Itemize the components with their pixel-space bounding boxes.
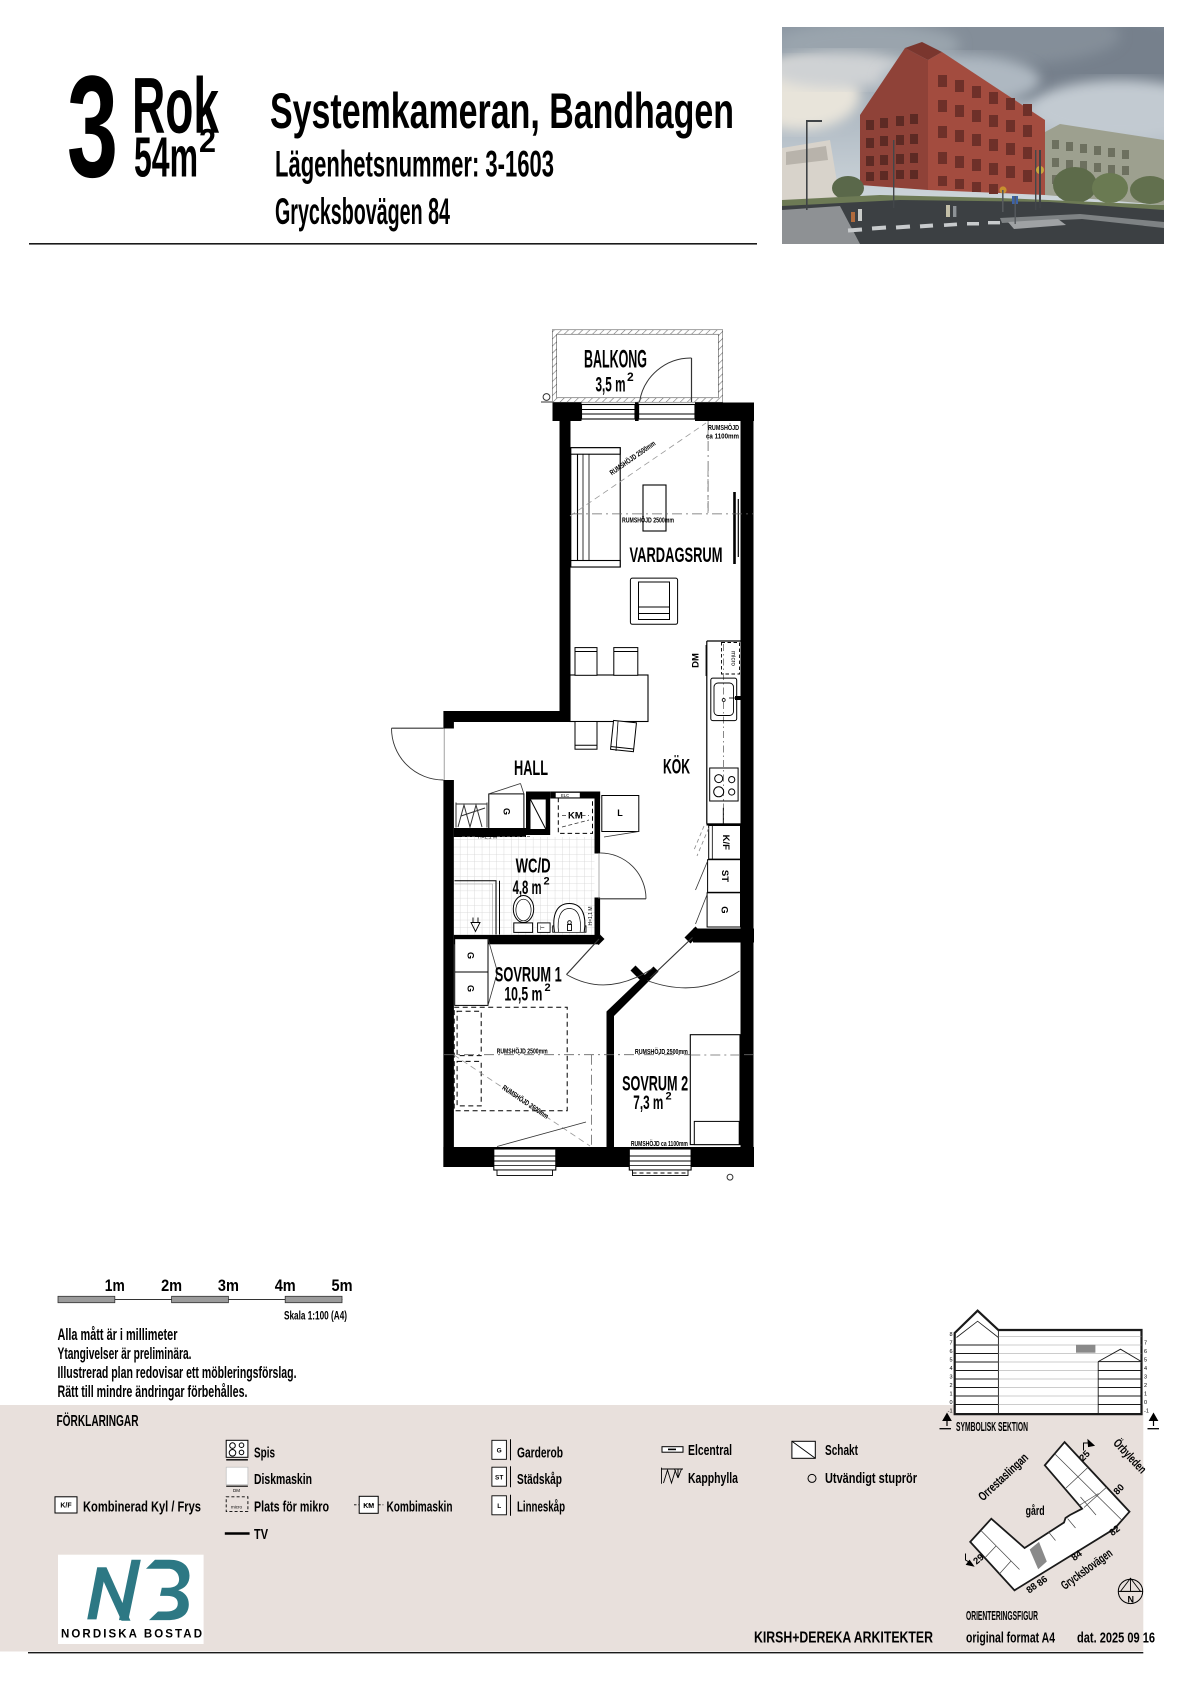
- svg-text:gård: gård: [1026, 1504, 1045, 1518]
- svg-text:K/F: K/F: [720, 835, 731, 851]
- svg-text:4: 4: [1144, 1366, 1147, 1372]
- svg-text:Rätt till mindre ändringar för: Rätt till mindre ändringar förbehålles.: [58, 1383, 248, 1401]
- svg-text:micro: micro: [730, 651, 736, 666]
- svg-text:3,5 m: 3,5 m: [596, 374, 626, 397]
- svg-text:Diskmaskin: Diskmaskin: [254, 1472, 312, 1488]
- svg-text:RUMSHÖJD ca 1100mm: RUMSHÖJD ca 1100mm: [631, 1139, 688, 1148]
- svg-text:Skala 1:100 (A4): Skala 1:100 (A4): [284, 1311, 347, 1323]
- svg-text:-1: -1: [1144, 1409, 1149, 1415]
- svg-text:Alla mått är i millimeter: Alla mått är i millimeter: [58, 1326, 178, 1344]
- svg-text:H=2,1 M: H=2,1 M: [478, 835, 497, 841]
- svg-text:Systemkameran, Bandhagen: Systemkameran, Bandhagen: [270, 83, 734, 139]
- svg-text:Städskåp: Städskåp: [517, 1472, 562, 1488]
- svg-text:Lägenhetsnummer: 3-1603: Lägenhetsnummer: 3-1603: [275, 144, 554, 185]
- svg-text:1: 1: [949, 1392, 952, 1398]
- svg-text:Schakt: Schakt: [825, 1443, 858, 1459]
- svg-text:3: 3: [67, 46, 118, 208]
- svg-text:Kapphylla: Kapphylla: [688, 1471, 739, 1487]
- svg-text:5: 5: [949, 1358, 952, 1364]
- svg-text:ST: ST: [719, 870, 730, 882]
- svg-text:7: 7: [949, 1341, 952, 1347]
- svg-text:FÖRKLARINGAR: FÖRKLARINGAR: [57, 1411, 139, 1430]
- svg-text:2m: 2m: [161, 1277, 182, 1295]
- svg-text:6: 6: [949, 1349, 952, 1355]
- svg-text:4,8 m: 4,8 m: [513, 878, 542, 899]
- svg-text:ORIENTERINGSFIGUR: ORIENTERINGSFIGUR: [966, 1609, 1038, 1623]
- svg-text:KIRSH+DEREKA ARKITEKTER: KIRSH+DEREKA ARKITEKTER: [754, 1630, 933, 1647]
- svg-text:RUMSHÖJD 2500mm: RUMSHÖJD 2500mm: [635, 1047, 688, 1056]
- svg-text:RUMSHÖJD 2500mm: RUMSHÖJD 2500mm: [497, 1047, 548, 1056]
- svg-text:G: G: [497, 1448, 502, 1455]
- svg-text:2: 2: [949, 1383, 952, 1389]
- svg-text:L: L: [617, 808, 623, 818]
- svg-text:G: G: [466, 952, 476, 959]
- svg-text:N: N: [1127, 1595, 1134, 1605]
- svg-text:Illustrerad plan redovisar ett: Illustrerad plan redovisar ett möblering…: [58, 1364, 297, 1382]
- svg-text:Elcentral: Elcentral: [688, 1443, 732, 1459]
- svg-text:4: 4: [949, 1366, 952, 1372]
- svg-text:NORDISKA BOSTAD: NORDISKA BOSTAD: [61, 1629, 202, 1641]
- svg-text:DM: DM: [233, 1488, 240, 1493]
- svg-text:2: 2: [545, 982, 551, 994]
- svg-text:Spis: Spis: [254, 1446, 275, 1462]
- svg-text:G: G: [466, 985, 476, 992]
- svg-text:0: 0: [1144, 1400, 1147, 1406]
- svg-text:1m: 1m: [105, 1277, 125, 1295]
- svg-text:1: 1: [1144, 1392, 1147, 1398]
- svg-text:-1: -1: [948, 1409, 953, 1415]
- svg-text:Kombinerad Kyl / Frys: Kombinerad Kyl / Frys: [83, 1500, 201, 1516]
- svg-text:dat. 2025 09 16: dat. 2025 09 16: [1077, 1630, 1155, 1647]
- svg-text:2: 2: [1144, 1383, 1147, 1389]
- svg-text:ST: ST: [495, 1474, 503, 1481]
- svg-text:RUMSHÖJD: RUMSHÖJD: [708, 423, 739, 432]
- svg-text:0: 0: [949, 1400, 952, 1406]
- svg-text:Linneskåp: Linneskåp: [517, 1500, 565, 1516]
- svg-text:3: 3: [1144, 1375, 1147, 1381]
- svg-text:10,5 m: 10,5 m: [504, 985, 542, 1006]
- svg-text:SYMBOLISK SEKTION: SYMBOLISK SEKTION: [956, 1420, 1028, 1434]
- svg-text:⊢: ⊢: [540, 925, 545, 932]
- svg-text:Garderob: Garderob: [517, 1446, 563, 1462]
- svg-text:3: 3: [949, 1375, 952, 1381]
- svg-text:7: 7: [1144, 1341, 1147, 1347]
- svg-text:KÖK: KÖK: [663, 754, 690, 779]
- svg-text:2: 2: [666, 1091, 672, 1103]
- svg-text:TV: TV: [254, 1527, 268, 1543]
- svg-text:RUMSHÖJD 2500mm: RUMSHÖJD 2500mm: [622, 516, 674, 525]
- svg-text:WC/D: WC/D: [516, 856, 551, 878]
- svg-text:Kombimaskin: Kombimaskin: [387, 1500, 453, 1516]
- svg-text:KM: KM: [363, 1503, 374, 1510]
- svg-text:2: 2: [199, 122, 216, 159]
- svg-text:2: 2: [627, 370, 634, 384]
- svg-text:BALKONG: BALKONG: [584, 346, 647, 374]
- svg-text:K/F: K/F: [60, 1503, 72, 1510]
- svg-text:H=1,1 M: H=1,1 M: [588, 906, 594, 925]
- svg-text:original format A4: original format A4: [966, 1630, 1055, 1647]
- svg-text:5m: 5m: [332, 1277, 353, 1295]
- svg-text:8: 8: [949, 1332, 952, 1338]
- svg-text:4m: 4m: [275, 1277, 296, 1295]
- svg-text:2: 2: [544, 876, 550, 888]
- svg-text:KM: KM: [568, 811, 583, 822]
- svg-text:Plats för mikro: Plats för mikro: [254, 1500, 329, 1516]
- svg-text:Utvändigt stuprör: Utvändigt stuprör: [825, 1471, 917, 1487]
- svg-text:L: L: [497, 1503, 501, 1510]
- svg-text:Grycksbovägen 84: Grycksbovägen 84: [275, 191, 450, 232]
- svg-text:micro: micro: [231, 1505, 242, 1510]
- svg-text:DM: DM: [691, 653, 702, 668]
- svg-text:ELC: ELC: [561, 793, 569, 798]
- svg-text:54m: 54m: [134, 126, 198, 190]
- svg-text:VARDAGSRUM: VARDAGSRUM: [630, 544, 723, 567]
- svg-text:G: G: [502, 808, 512, 815]
- svg-text:7,3 m: 7,3 m: [633, 1093, 663, 1114]
- svg-text:3m: 3m: [218, 1277, 239, 1295]
- svg-text:SOVRUM 1: SOVRUM 1: [495, 964, 562, 987]
- svg-text:Ytangivelser är preliminära.: Ytangivelser är preliminära.: [58, 1345, 192, 1363]
- svg-text:G: G: [719, 906, 730, 913]
- svg-text:HALL: HALL: [514, 756, 548, 780]
- svg-text:5: 5: [1144, 1358, 1147, 1364]
- svg-text:ca 1100mm: ca 1100mm: [706, 434, 739, 441]
- svg-text:6: 6: [1144, 1349, 1147, 1355]
